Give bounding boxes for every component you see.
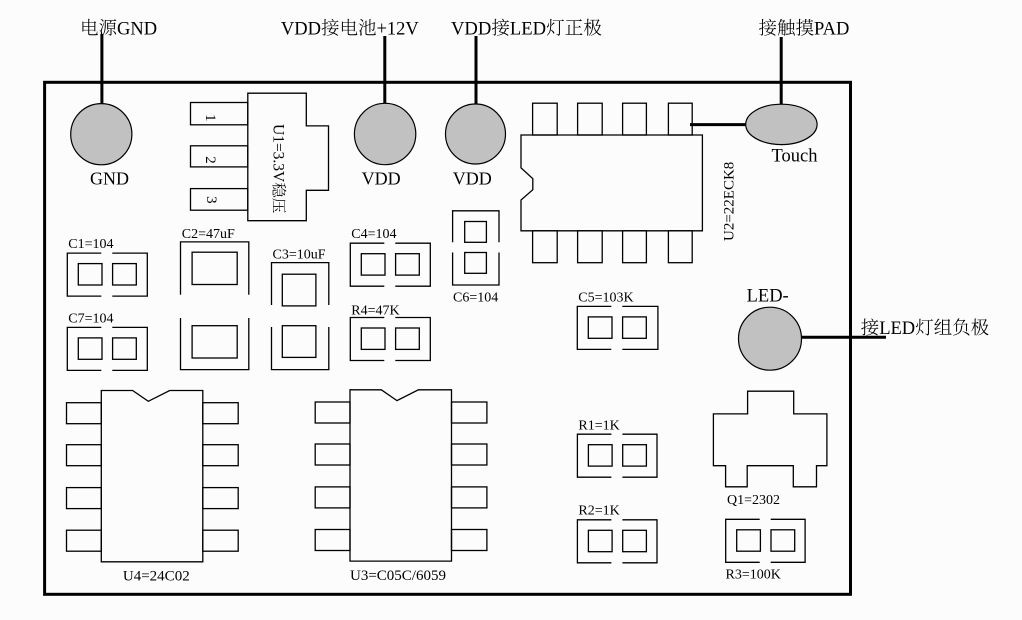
svg-text:R1=1K: R1=1K [578, 418, 619, 433]
svg-text:VDD: VDD [451, 18, 491, 39]
svg-text:3: 3 [203, 196, 219, 204]
svg-text:GND: GND [90, 169, 129, 189]
svg-text:C1=104: C1=104 [68, 237, 113, 252]
svg-text:R4=47K: R4=47K [351, 303, 399, 318]
svg-text:C3=10uF: C3=10uF [273, 248, 326, 263]
svg-text:1: 1 [202, 114, 218, 122]
svg-text:R2=1K: R2=1K [578, 504, 619, 519]
svg-text:C7=104: C7=104 [68, 311, 113, 326]
svg-text:LED-: LED- [747, 286, 789, 306]
svg-text:C4=104: C4=104 [351, 227, 396, 242]
svg-text:C5=103K: C5=103K [578, 291, 633, 306]
svg-text:+12V: +12V [377, 19, 420, 39]
svg-text:U2=22ECK8: U2=22ECK8 [722, 162, 738, 241]
svg-text:2: 2 [202, 156, 218, 164]
svg-text:LED: LED [510, 18, 546, 39]
svg-text:U3=C05C/6059: U3=C05C/6059 [350, 568, 446, 584]
svg-text:VDD: VDD [281, 19, 321, 39]
svg-text:R3=100K: R3=100K [726, 567, 781, 582]
svg-text:VDD: VDD [362, 169, 401, 189]
svg-text:GND: GND [117, 19, 157, 39]
svg-text:C2=47uF: C2=47uF [182, 227, 235, 242]
svg-text:Q1=2302: Q1=2302 [727, 493, 780, 508]
svg-text:PAD: PAD [814, 19, 849, 39]
svg-text:U4=24C02: U4=24C02 [123, 569, 190, 585]
svg-text:Touch: Touch [772, 147, 818, 167]
svg-text:U1=3.3V: U1=3.3V [269, 124, 286, 183]
svg-text:VDD: VDD [453, 169, 492, 189]
svg-text:C6=104: C6=104 [453, 290, 498, 305]
